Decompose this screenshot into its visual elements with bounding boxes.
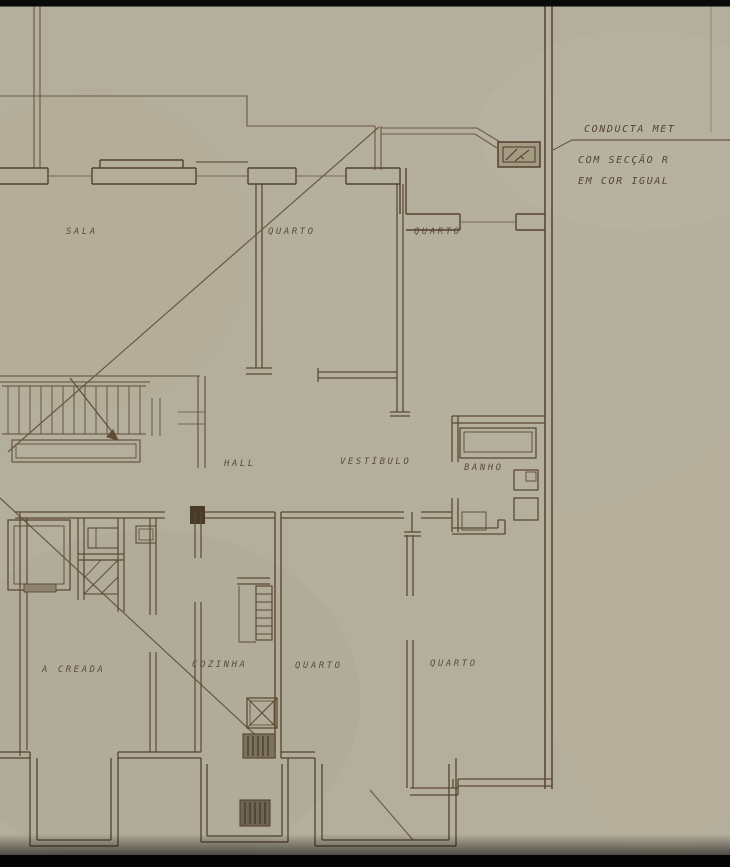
room-label-cozinha: COZINHA: [192, 660, 247, 670]
blueprint-page: SALA QUARTO QUARTO HALL VESTÍBULO BANHO …: [0, 0, 730, 867]
room-label-quarto-top-left: QUARTO: [268, 227, 316, 237]
room-label-quarto-top-right: QUARTO: [414, 227, 462, 237]
room-label-vestibulo: VESTÍBULO: [340, 455, 411, 467]
middle-wall-band: [15, 512, 452, 536]
annotation-line2: COM SECÇÃO R: [578, 153, 669, 166]
stair-arrowhead: [106, 429, 119, 441]
room-label-sala: SALA: [66, 227, 98, 237]
room-label-quarto-bottom-left: QUARTO: [295, 661, 343, 671]
room-label-quarto-bottom-right: QUARTO: [430, 659, 478, 669]
wall-pier: [190, 506, 205, 524]
room-label-banho: BANHO: [464, 463, 504, 473]
annotation-text: CONDUCTA MET COM SECÇÃO R EM COR IGUAL: [578, 124, 675, 187]
annotation-line1: CONDUCTA MET: [584, 124, 675, 135]
floor-plan-drawing: SALA QUARTO QUARTO HALL VESTÍBULO BANHO …: [0, 0, 730, 867]
metal-duct-detail: [498, 142, 540, 167]
room-label-creada: A CREADA: [41, 665, 105, 675]
room-label-hall: HALL: [223, 459, 256, 469]
annotation-line3: EM COR IGUAL: [578, 176, 669, 187]
